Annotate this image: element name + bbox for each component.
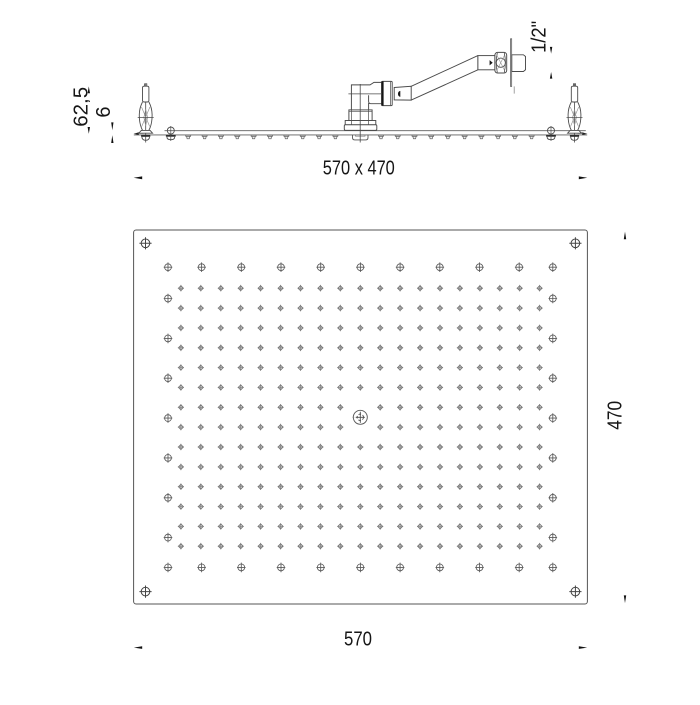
svg-text:470: 470 [605, 401, 627, 430]
svg-text:570: 570 [344, 629, 372, 651]
svg-text:1/2": 1/2" [528, 21, 550, 53]
svg-text:6: 6 [93, 106, 115, 117]
svg-text:570 x 470: 570 x 470 [323, 157, 395, 179]
